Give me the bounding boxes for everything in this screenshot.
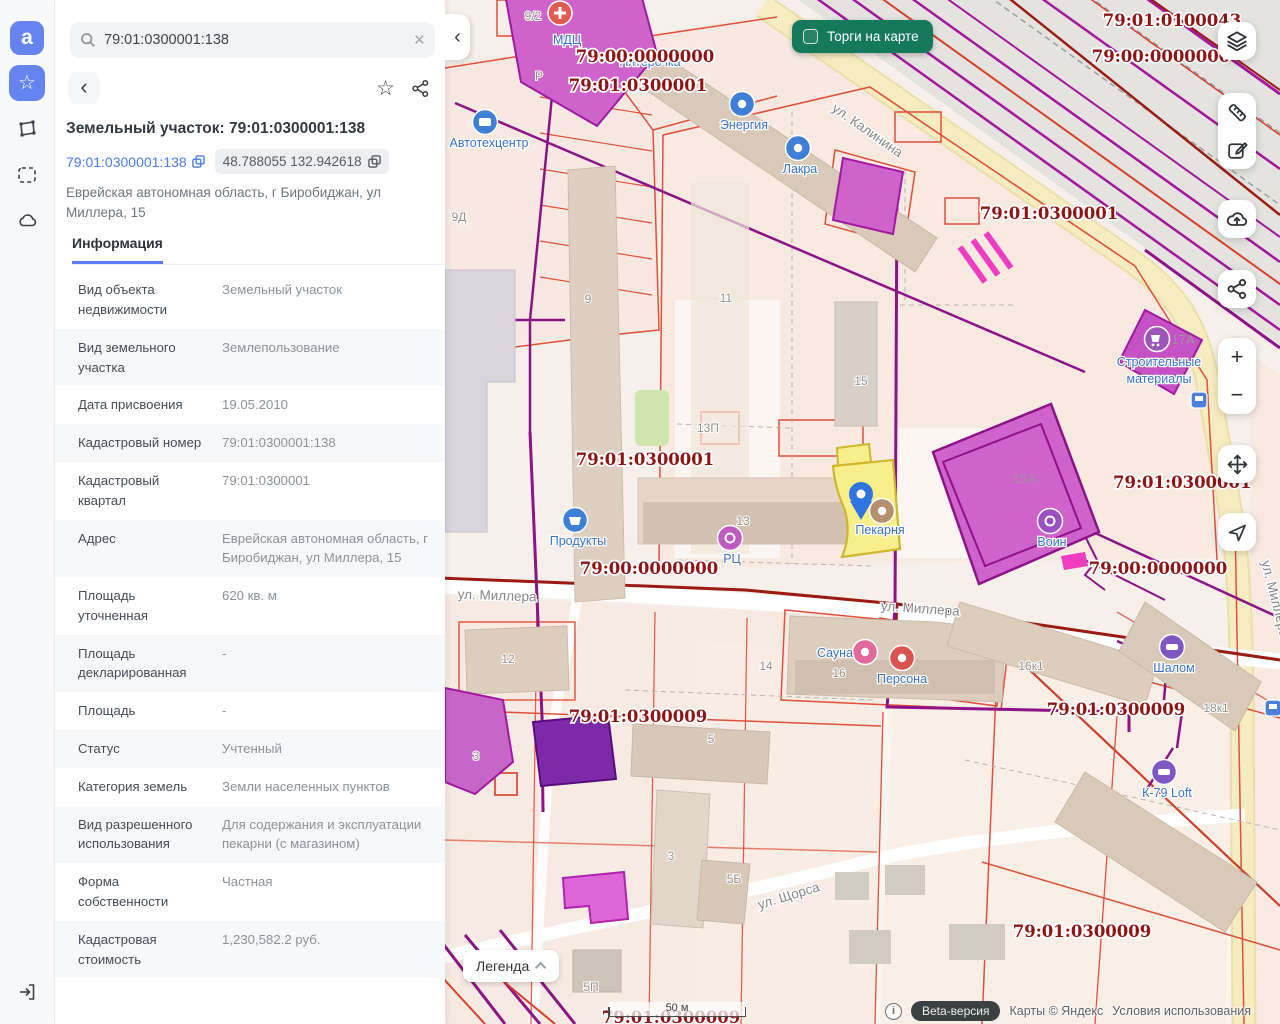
location-arrow-icon	[1226, 521, 1248, 543]
svg-text:Продукты: Продукты	[550, 534, 606, 548]
svg-text:79:00:0000000: 79:00:0000000	[1092, 47, 1230, 66]
svg-text:9/2: 9/2	[525, 9, 542, 23]
cloud-upload-icon	[1225, 207, 1249, 231]
svg-text:79:01:0300001: 79:01:0300001	[980, 204, 1118, 223]
hotel-icon[interactable]	[1152, 760, 1177, 785]
beta-badge: Beta-версия	[911, 1001, 1000, 1021]
page-title: Земельный участок: 79:01:0300001:138	[66, 120, 430, 138]
table-row: Форма собственностиЧастная	[55, 863, 445, 921]
svg-text:9Д: 9Д	[452, 210, 467, 224]
svg-text:материалы: материалы	[1127, 372, 1192, 386]
map-scale-bar: 50 м	[608, 1002, 746, 1017]
svg-text:МДЦ: МДЦ	[553, 33, 582, 47]
cadastral-number-text: 79:01:0300001:138	[66, 154, 187, 170]
ruler-icon	[1226, 101, 1249, 124]
object-address: Еврейская автономная область, г Биробидж…	[66, 183, 425, 222]
table-row: Кадастровая стоимость1,230,582.2 руб.	[55, 921, 445, 979]
svg-text:15А: 15А	[1012, 471, 1035, 486]
hotel-icon[interactable]	[1160, 635, 1185, 660]
exit-button[interactable]	[10, 974, 46, 1010]
lawn	[635, 390, 669, 446]
zoom-in-button[interactable]: +	[1218, 338, 1256, 376]
svg-text:79:01:0300001: 79:01:0300001	[576, 450, 714, 469]
svg-text:Шалом: Шалом	[1153, 661, 1194, 675]
collapse-panel-button[interactable]: ‹	[445, 14, 470, 60]
dashed-select-icon	[16, 164, 38, 186]
legend-button[interactable]: Легенда	[463, 950, 559, 982]
cadastral-number-link[interactable]: 79:01:0300001:138	[66, 154, 205, 170]
copyright-link[interactable]: Карты © Яндекс	[1009, 1004, 1103, 1018]
table-row: Вид разрешенного использованияДля содерж…	[55, 806, 445, 864]
clear-search-icon[interactable]: ×	[414, 31, 425, 50]
svg-text:16: 16	[832, 666, 846, 680]
svg-text:Автотехцентр: Автотехцентр	[449, 136, 528, 150]
svg-text:Персона: Персона	[877, 672, 927, 686]
checkbox-icon[interactable]	[803, 29, 818, 44]
pan-move-icon	[1226, 453, 1249, 476]
share-map-button[interactable]	[1218, 270, 1256, 308]
auctions-on-map-toggle[interactable]: Торги на карте	[792, 20, 933, 53]
building-materials-icon[interactable]	[1145, 327, 1170, 352]
toggle-label: Торги на карте	[827, 29, 919, 44]
svg-text:5Б: 5Б	[727, 872, 742, 886]
svg-text:Энергия: Энергия	[720, 118, 768, 132]
draw-edit-button[interactable]	[1218, 131, 1256, 169]
svg-text:79:01:0300009: 79:01:0300009	[1013, 922, 1151, 941]
table-row: Кадастровый номер79:01:0300001:138	[55, 424, 445, 462]
share-icon	[1226, 278, 1248, 300]
table-row: Дата присвоения19.05.2010	[55, 386, 445, 424]
map-controls: + −	[1218, 22, 1256, 551]
map-canvas[interactable]: ул. Калинина ул. Миллера ул. Миллера ул.…	[445, 0, 1280, 1024]
center-icon[interactable]	[718, 526, 743, 551]
memorial-icon[interactable]	[1038, 509, 1063, 534]
table-row: Площадь декларированная-	[55, 635, 445, 693]
transit-stop-icon[interactable]	[1191, 392, 1207, 408]
svg-text:Сауна: Сауна	[817, 646, 853, 660]
svg-text:16к1: 16к1	[1018, 659, 1044, 673]
legend-label: Легенда	[476, 958, 529, 974]
polygon-icon	[16, 118, 38, 140]
sidebar-item-favorites[interactable]: ☆	[9, 65, 45, 101]
grocery-icon[interactable]	[563, 508, 588, 533]
layers-button[interactable]	[1218, 22, 1256, 60]
sidebar-item-polygon-tool[interactable]	[9, 111, 45, 147]
svg-text:14: 14	[759, 659, 773, 673]
sauna-icon[interactable]	[853, 640, 878, 665]
svg-text:Воин: Воин	[1037, 535, 1066, 549]
object-toolbar: ‹ ☆	[68, 72, 430, 104]
svg-text:79:00:0000000: 79:00:0000000	[1089, 559, 1227, 578]
terms-link[interactable]: Условия использования	[1112, 1004, 1251, 1018]
edit-icon	[1226, 139, 1249, 162]
zoom-out-button[interactable]: −	[1218, 376, 1256, 414]
search-input[interactable]	[104, 32, 414, 48]
back-button[interactable]: ‹	[68, 72, 100, 104]
map-attribution: i Beta-версия Карты © Яндекс Условия исп…	[885, 1001, 1251, 1021]
app-logo-icon[interactable]: a	[10, 21, 44, 55]
info-table: Вид объекта недвижимостиЗемельный участо…	[55, 271, 445, 978]
svg-text:Строительные: Строительные	[1117, 355, 1201, 369]
svg-text:ул. Миллера: ул. Миллера	[457, 587, 537, 605]
table-row: Категория земельЗемли населенных пунктов	[55, 768, 445, 806]
app-logo-glyph: a	[21, 26, 33, 50]
svg-text:Пекарня: Пекарня	[855, 523, 904, 537]
table-row: АдресЕврейская автономная область, г Бир…	[55, 520, 445, 578]
search-icon	[80, 32, 96, 48]
cloud-icon	[16, 210, 38, 232]
info-panel: × ‹ ☆ Земельный участок: 79:01:0300001:1…	[55, 0, 445, 1024]
svg-text:9: 9	[585, 292, 592, 306]
ruler-button[interactable]	[1218, 93, 1256, 131]
svg-text:79:01:0300001: 79:01:0300001	[569, 76, 707, 95]
table-row: Площадь-	[55, 692, 445, 730]
exit-icon	[17, 981, 39, 1003]
coordinates-text: 48.788055 132.942618	[223, 154, 362, 169]
search-bar[interactable]: ×	[70, 22, 435, 58]
store-icon[interactable]	[786, 136, 811, 161]
dentist-icon[interactable]	[890, 646, 915, 671]
svg-text:17А: 17А	[1171, 332, 1194, 347]
svg-text:3: 3	[473, 749, 480, 763]
svg-text:15: 15	[854, 374, 868, 388]
svg-text:5: 5	[708, 732, 715, 746]
map-area: ул. Калинина ул. Миллера ул. Миллера ул.…	[445, 0, 1280, 1024]
svg-text:12: 12	[501, 652, 515, 666]
svg-text:79:01:0300009: 79:01:0300009	[569, 707, 707, 726]
svg-text:3: 3	[668, 849, 675, 863]
table-row: Площадь уточненная620 кв. м	[55, 577, 445, 635]
coordinates-chip[interactable]: 48.788055 132.942618	[215, 149, 389, 174]
favorite-icon[interactable]: ☆	[376, 78, 395, 99]
svg-text:5П: 5П	[583, 980, 598, 994]
info-icon[interactable]: i	[885, 1003, 902, 1020]
svg-text:11: 11	[720, 291, 733, 305]
copy-icon[interactable]	[368, 155, 381, 168]
pan-mode-button[interactable]	[1218, 445, 1256, 483]
copy-icon[interactable]	[192, 155, 205, 168]
chevron-up-icon	[535, 962, 546, 973]
svg-text:РЦ: РЦ	[723, 552, 741, 566]
layers-icon	[1225, 29, 1249, 53]
bakery-icon[interactable]	[870, 499, 895, 524]
table-row: Кадастровый квартал79:01:0300001	[55, 462, 445, 520]
table-row: Вид земельного участкаЗемлепользование	[55, 329, 445, 387]
svg-text:13: 13	[736, 514, 750, 528]
svg-text:Лакра: Лакра	[783, 162, 818, 176]
transit-stop-icon[interactable]	[1265, 700, 1280, 716]
left-icon-rail: a ☆	[0, 0, 55, 1024]
table-row: СтатусУчтенный	[55, 730, 445, 768]
svg-text:К-79 Loft: К-79 Loft	[1142, 786, 1192, 800]
sidebar-item-area-select[interactable]	[9, 157, 45, 193]
svg-text:13П: 13П	[697, 421, 719, 435]
energy-icon[interactable]	[730, 92, 755, 117]
upload-button[interactable]	[1218, 200, 1256, 238]
svg-text:79:00:0000000: 79:00:0000000	[580, 559, 718, 578]
tab-bar: Информация	[72, 235, 445, 265]
table-row: Вид объекта недвижимостиЗемельный участо…	[55, 271, 445, 329]
svg-text:79:01:0300009: 79:01:0300009	[1047, 700, 1185, 719]
share-icon[interactable]	[411, 79, 430, 98]
identifier-row: 79:01:0300001:138 48.788055 132.942618	[66, 149, 430, 174]
svg-text:Р: Р	[535, 69, 543, 83]
tab-information[interactable]: Информация	[72, 235, 163, 264]
sidebar-item-cloud[interactable]	[9, 203, 45, 239]
star-icon: ☆	[18, 73, 36, 93]
svg-text:79:00:0000000: 79:00:0000000	[576, 47, 714, 66]
car-service-icon[interactable]	[473, 110, 498, 135]
app-window: a ☆ × ‹ ☆ Земельный	[0, 0, 1280, 1024]
svg-text:18к1: 18к1	[1203, 701, 1229, 715]
locate-me-button[interactable]	[1218, 513, 1256, 551]
medical-cross-icon[interactable]	[548, 1, 572, 25]
